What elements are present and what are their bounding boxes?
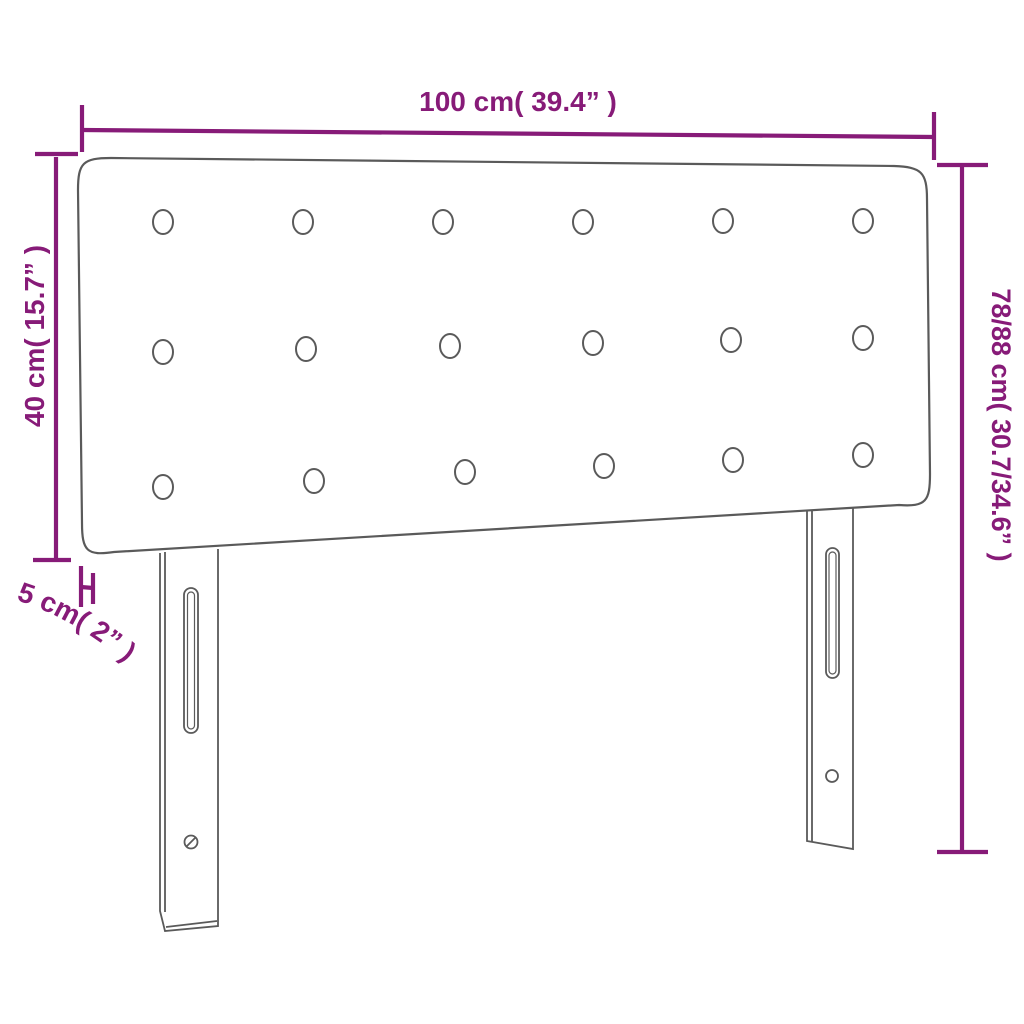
thickness-connector [81,587,93,588]
tufting-button [723,448,743,472]
tufting-button [853,209,873,233]
thickness-label: 5 cm( 2” ) [14,576,142,667]
tufting-button [455,460,475,484]
right-leg-slot [826,548,839,678]
tufting-button [433,210,453,234]
right-leg-outline [807,508,853,849]
right-leg [807,508,853,849]
tufting-button [153,210,173,234]
tufting-button [583,331,603,355]
tufting-button [440,334,460,358]
left-leg-screw-slot [187,838,196,847]
tufting-button [573,210,593,234]
tufting-button [296,337,316,361]
tufting-button [713,209,733,233]
left-leg-slot-inner [188,592,195,729]
tufting-button [304,469,324,493]
tufting-button [721,328,741,352]
tufting-button [594,454,614,478]
headboard-panel [78,158,930,553]
thickness-dimension [81,566,93,607]
headboard-dimension-diagram: 100 cm( 39.4” ) 40 cm( 15.7” ) 5 cm( 2” … [0,0,1024,1024]
left-leg-slot [184,588,198,733]
headboard-product [78,158,930,931]
tufting-button [153,340,173,364]
total-height-label: 78/88 cm( 30.7/34.6” ) [986,288,1016,561]
total-height-dimension [937,165,988,852]
left-leg-outline [160,549,218,931]
diagram-canvas: 100 cm( 39.4” ) 40 cm( 15.7” ) 5 cm( 2” … [0,0,1024,1024]
tufting-button [853,326,873,350]
right-leg-slot-inner [829,552,836,674]
width-dimension-label: 100 cm( 39.4” ) [419,86,617,117]
left-leg [160,549,218,931]
tufting-buttons [153,209,873,499]
tufting-button [153,475,173,499]
headboard-height-label: 40 cm( 15.7” ) [19,245,50,427]
tufting-button [293,210,313,234]
right-leg-screw [826,770,838,782]
tufting-button [853,443,873,467]
width-dimension-line [82,130,934,137]
